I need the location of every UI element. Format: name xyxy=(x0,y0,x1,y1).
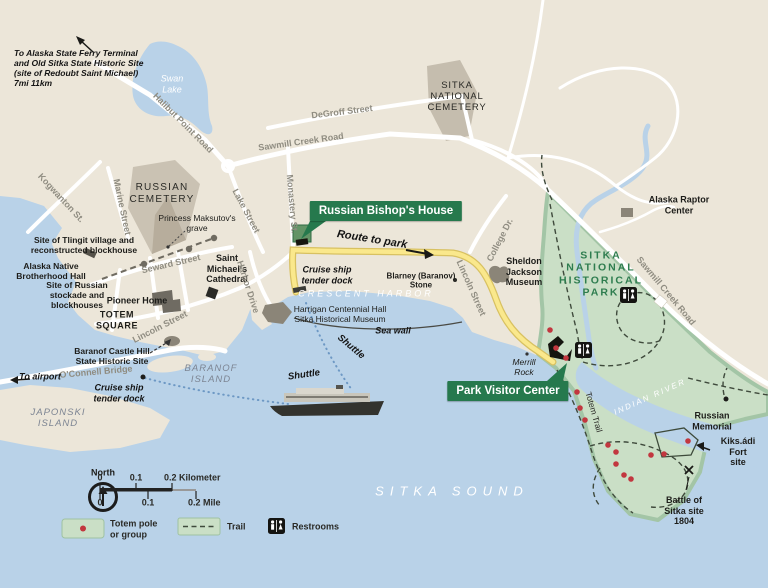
baranof-island-label: BARANOF ISLAND xyxy=(185,363,238,385)
scale-km-02: 0.2 Kilometer xyxy=(164,473,221,484)
crescent-harbor-label: CRESCENT HARBOR xyxy=(298,289,434,300)
sea-wall-label: Sea wall xyxy=(375,326,411,337)
castle-hill-label: Baranof Castle Hill State Historic Site xyxy=(74,346,150,366)
blarney-stone-label: Blarney (Baranov) Stone xyxy=(387,272,456,291)
restrooms-icon xyxy=(575,342,592,358)
ferry-terminal-note: To Alaska State Ferry Terminal and Old S… xyxy=(14,48,143,88)
anb-hall-label: Alaska Native Brotherhood Hall xyxy=(16,261,85,281)
raptor-center-building xyxy=(621,208,633,217)
swan-lake-label: Swan Lake xyxy=(161,73,184,94)
sitka-sound-label: SITKA SOUND xyxy=(375,483,529,498)
scale-mi-02: 0.2 Mile xyxy=(188,498,221,509)
tender-dock-dot xyxy=(141,375,146,380)
raptor-center-label: Alaska Raptor Center xyxy=(635,194,724,215)
merrill-dot xyxy=(525,352,528,355)
russian-cemetery-label: RUSSIAN CEMETERY xyxy=(130,182,195,206)
legend-totem-label: Totem pole or group xyxy=(110,518,157,539)
russian-memorial-label: Russian Memorial xyxy=(692,410,732,431)
scale-km-01: 0.1 xyxy=(130,473,143,484)
tender-dock-left-label: Cruise ship tender dock xyxy=(93,382,144,403)
sheldon-jackson-label: Sheldon Jackson Museum xyxy=(506,256,543,288)
merrill-rock-label: Merrill Rock xyxy=(512,357,535,377)
battle-site-label: Battle of Sitka site 1804 xyxy=(664,495,704,527)
bishops-house-badge[interactable]: Russian Bishop's House xyxy=(310,201,462,221)
national-cemetery-label: SITKA NATIONAL CEMETERY xyxy=(427,80,486,114)
legend-restrooms-label: Restrooms xyxy=(292,522,339,533)
kiksadi-fort-label: Kiks.ádi Fort site xyxy=(721,436,756,468)
princess-grave-label: Princess Maksutov's grave xyxy=(158,213,235,233)
totem-square-label: TOTEM SQUARE xyxy=(96,309,138,330)
scale-mi-0: 0 xyxy=(97,498,102,509)
park-name-label: SITKA NATIONAL HISTORICAL PARK xyxy=(559,249,643,299)
memorial-dot xyxy=(724,397,729,402)
restrooms-icon xyxy=(268,518,285,534)
to-airport-label: To airport xyxy=(19,372,61,383)
pioneer-home-label: Pioneer Home xyxy=(107,296,168,307)
tlingit-site-label: Site of Tlingit village and reconstructe… xyxy=(31,235,137,255)
visitor-center-badge[interactable]: Park Visitor Center xyxy=(447,381,568,401)
scale-mi-01: 0.1 xyxy=(142,498,155,509)
legend-trail-label: Trail xyxy=(227,522,246,533)
sitka-park-map: To Alaska State Ferry Terminal and Old S… xyxy=(0,0,768,588)
stockade-site-label: Site of Russian stockade and blockhouses xyxy=(46,280,107,310)
north-label: North xyxy=(91,468,115,479)
harrigan-label: Harrigan Centennial Hall Sitka Historica… xyxy=(294,304,387,324)
tender-dock-center-label: Cruise ship tender dock xyxy=(301,264,352,285)
scale-km-0: 0 xyxy=(97,473,102,484)
japonski-island-label: JAPONSKI ISLAND xyxy=(31,407,86,429)
